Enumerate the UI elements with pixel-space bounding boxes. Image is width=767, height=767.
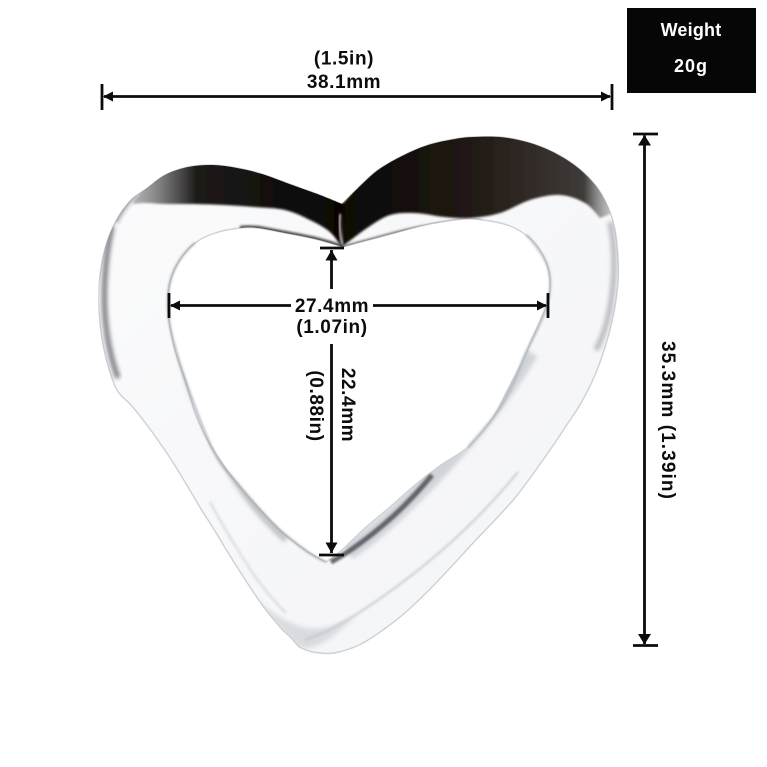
svg-text:38.1mm: 38.1mm <box>307 72 381 93</box>
svg-text:(1.07in): (1.07in) <box>296 317 367 338</box>
svg-text:(0.88in): (0.88in) <box>305 370 326 441</box>
svg-text:Weight: Weight <box>661 20 722 40</box>
svg-text:22.4mm: 22.4mm <box>337 368 358 442</box>
svg-text:27.4mm: 27.4mm <box>295 296 369 317</box>
svg-text:(1.5in): (1.5in) <box>314 49 374 70</box>
svg-text:20g: 20g <box>674 56 708 76</box>
svg-text:35.3mm (1.39in): 35.3mm (1.39in) <box>657 341 678 500</box>
